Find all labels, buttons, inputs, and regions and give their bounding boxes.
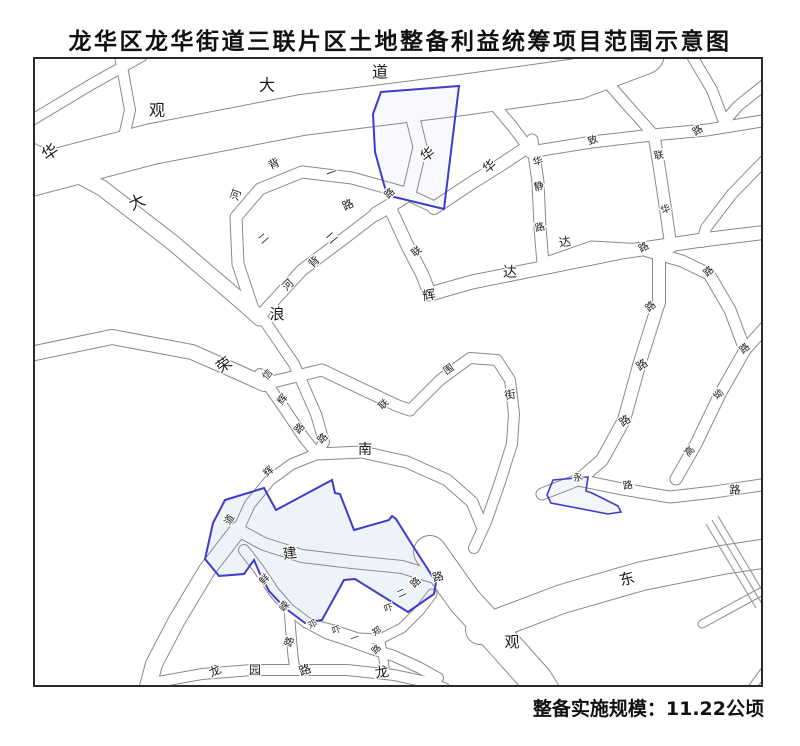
road-name-label: 达	[503, 265, 517, 281]
road-surface	[702, 588, 763, 624]
road-name-label: 观	[149, 101, 165, 120]
road-surface	[709, 274, 745, 350]
scale-caption: 整备实施规模：11.22公顷	[533, 694, 764, 721]
road-name-label: 园	[249, 663, 261, 677]
project-boundary-layer	[205, 86, 621, 623]
map-frame: 观大道华大背一路河路华二二背河浪荣信辉路路联南华华静路致路联华达路联达辉路路路路…	[33, 57, 763, 687]
road-surface	[692, 59, 724, 122]
road-name-label: 大	[259, 76, 275, 95]
road-name-label: 联	[653, 149, 665, 163]
road-name-label: 路	[340, 197, 355, 213]
road-name-label: 道	[372, 63, 388, 82]
road-name-label: 观	[504, 633, 519, 651]
road-name-label: 龙	[374, 664, 391, 682]
road-name-label: 路	[622, 478, 634, 493]
road-surface	[35, 150, 260, 318]
road-name-label: 建	[282, 545, 298, 563]
road-name-label: 南	[358, 442, 372, 458]
road-name-label: 路	[730, 484, 741, 497]
road-surface	[152, 670, 444, 687]
road-name-label: 辉	[421, 287, 436, 304]
road-surface	[474, 444, 512, 548]
road-name-label: 二	[257, 232, 272, 247]
road-name-label: 达	[558, 234, 572, 250]
page: 龙华区龙华街道三联片区土地整备利益统筹项目范围示意图 观大道华大背一路河路华二二…	[0, 0, 800, 746]
road-surface	[600, 74, 654, 135]
map-title: 龙华区龙华街道三联片区土地整备利益统筹项目范围示意图	[0, 22, 800, 56]
road-name-label: 背	[266, 155, 282, 172]
map-svg: 观大道华大背一路河路华二二背河浪荣信辉路路联南华华静路致路联华达路联达辉路路路路…	[35, 59, 763, 687]
road-name-label: 河	[228, 188, 244, 203]
project-boundary-main-parcel	[205, 480, 436, 623]
road-name-label: 浪	[269, 305, 284, 323]
